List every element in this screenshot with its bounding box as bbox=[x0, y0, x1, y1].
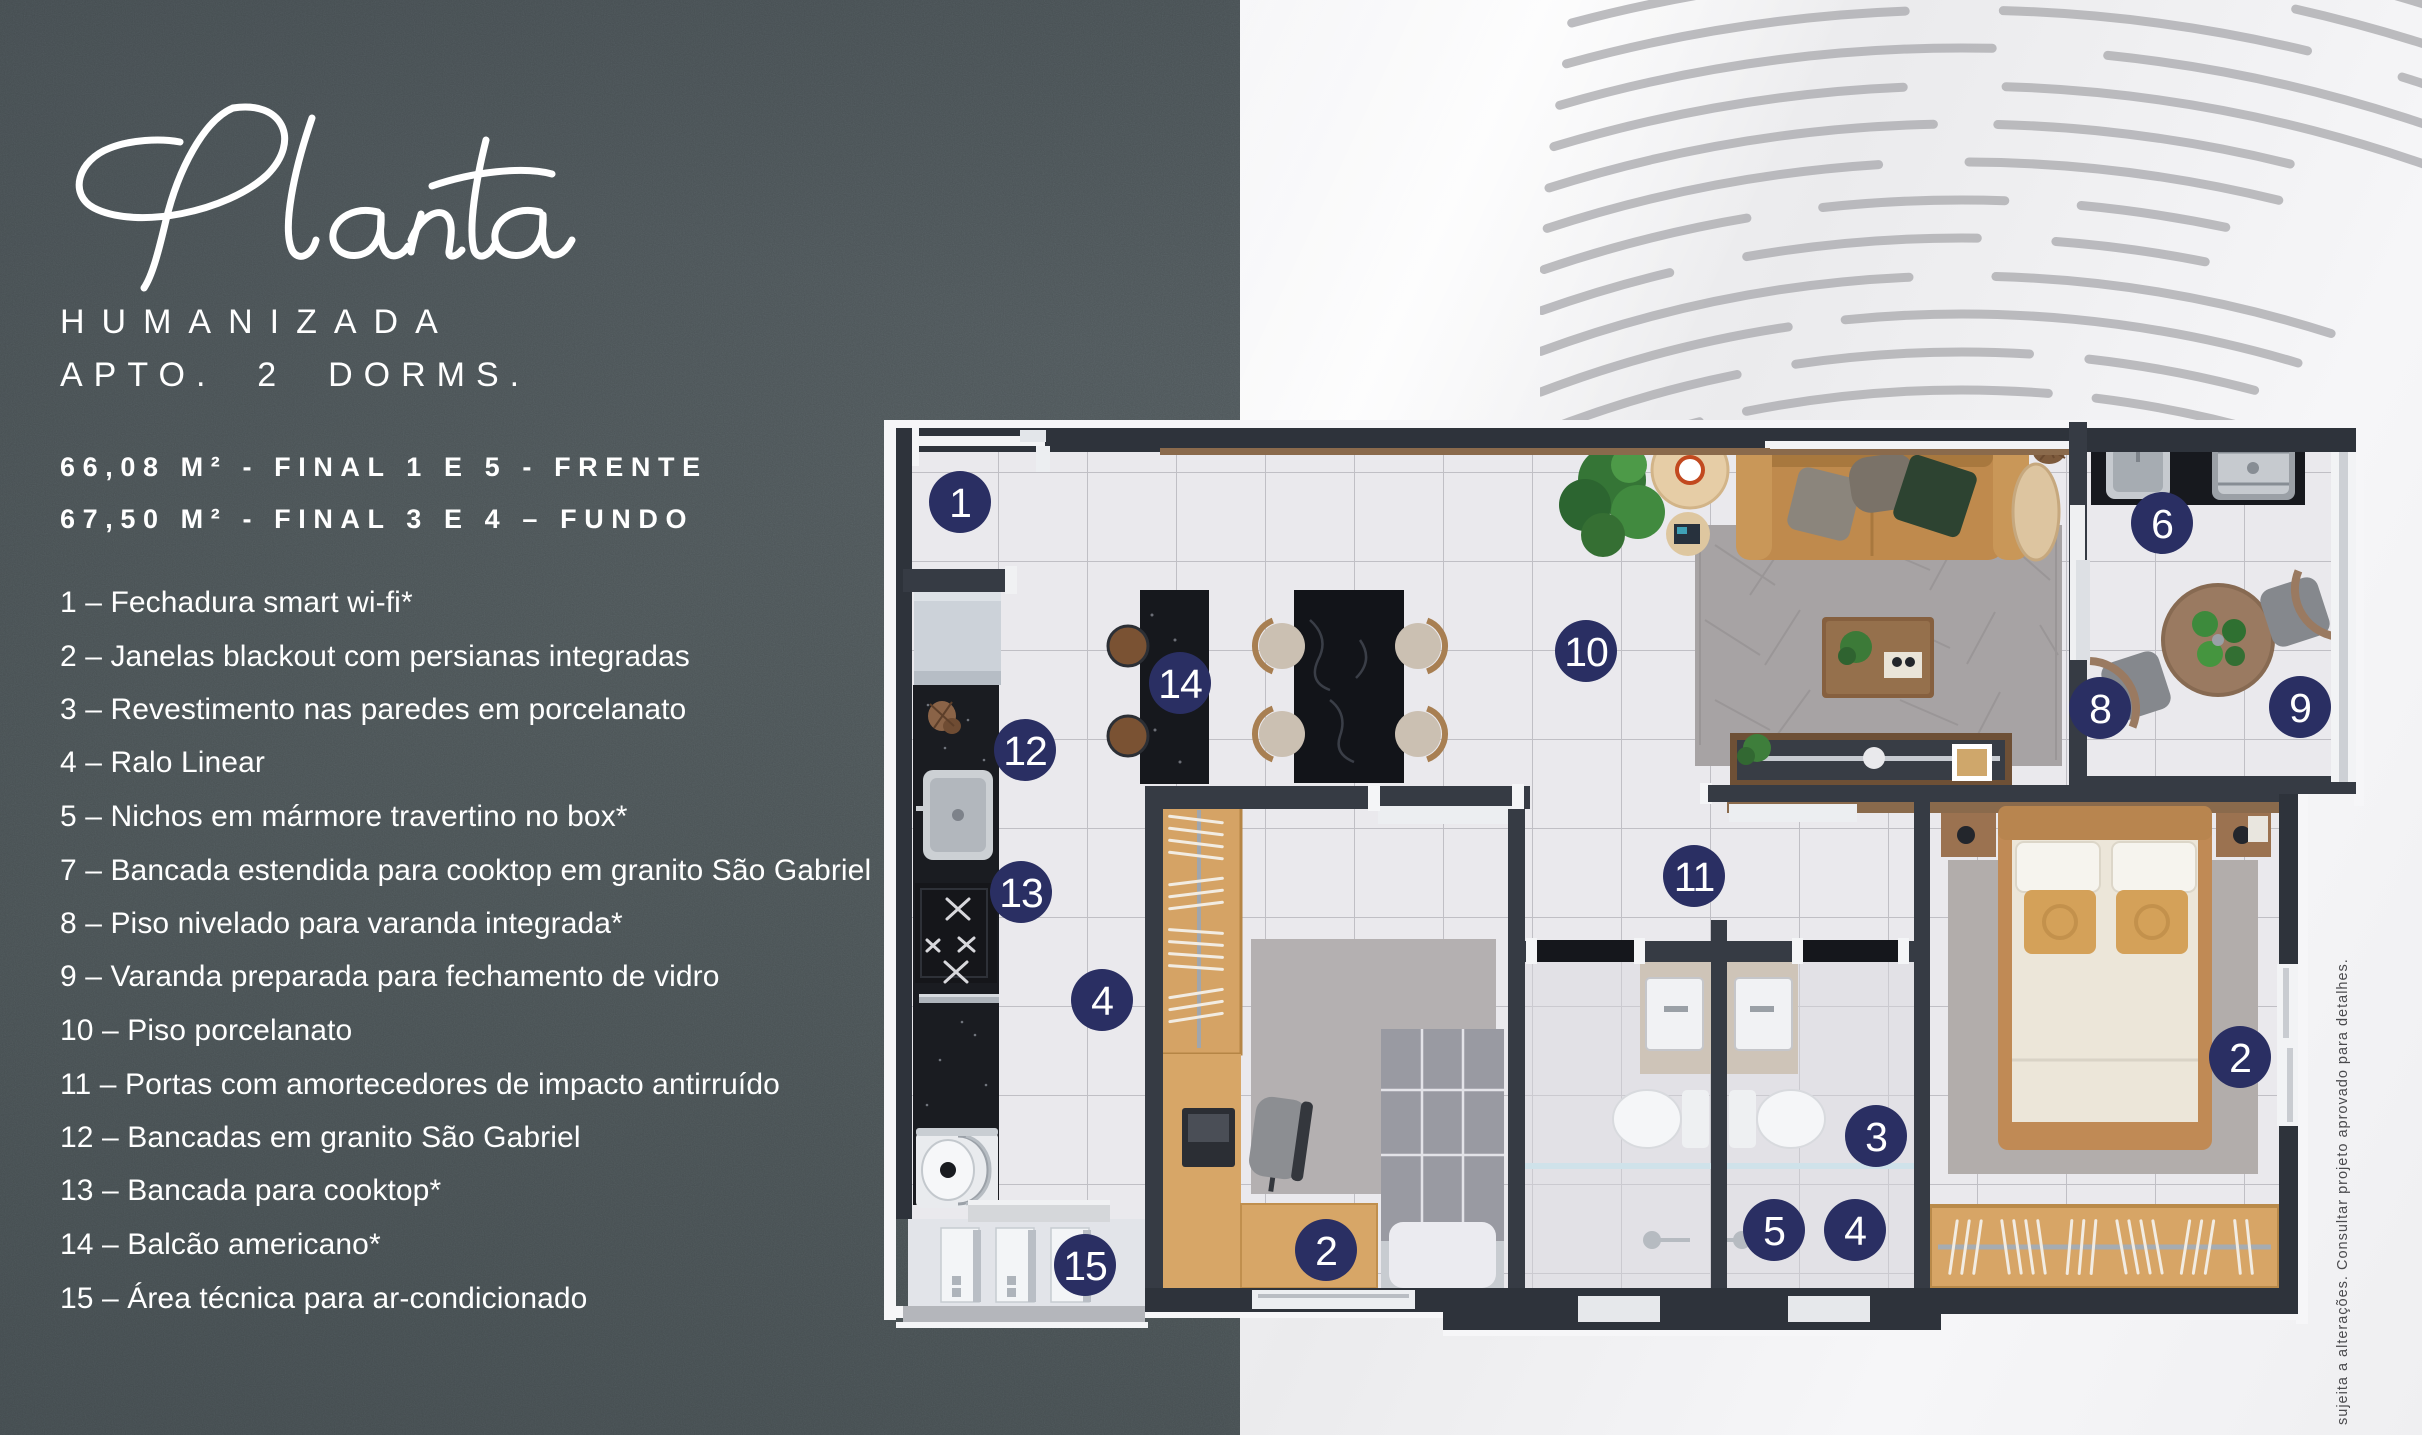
svg-text:8: 8 bbox=[2089, 686, 2111, 732]
svg-text:10: 10 bbox=[1564, 629, 1608, 675]
svg-text:13: 13 bbox=[999, 870, 1043, 916]
svg-text:15: 15 bbox=[1063, 1243, 1107, 1289]
svg-text:sujeita a alterações. Consulta: sujeita a alterações. Consultar projeto … bbox=[2335, 958, 2351, 1425]
svg-text:2: 2 bbox=[1315, 1228, 1337, 1274]
svg-text:5: 5 bbox=[1763, 1208, 1785, 1254]
svg-text:1: 1 bbox=[949, 480, 971, 526]
svg-text:4: 4 bbox=[1844, 1208, 1866, 1254]
svg-text:9: 9 bbox=[2289, 685, 2311, 731]
svg-text:11: 11 bbox=[1674, 854, 1715, 900]
svg-text:2: 2 bbox=[2229, 1035, 2251, 1081]
svg-text:6: 6 bbox=[2151, 501, 2173, 547]
svg-text:4: 4 bbox=[1091, 978, 1113, 1024]
svg-text:14: 14 bbox=[1158, 661, 1202, 707]
svg-text:12: 12 bbox=[1003, 728, 1047, 774]
svg-text:3: 3 bbox=[1865, 1114, 1887, 1160]
